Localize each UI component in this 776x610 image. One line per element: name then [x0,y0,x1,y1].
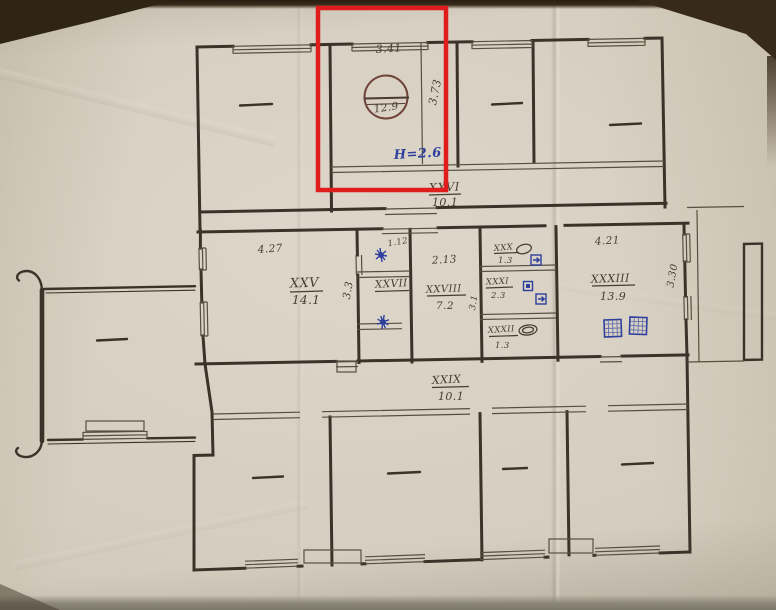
wall-end-curl-icon [17,271,42,292]
room-xxix-label: XXIX [431,372,463,387]
radiator-icon [531,255,541,265]
toilet-icon [518,324,537,336]
dim-room-xxxiii-depth: 3.30 [665,263,680,289]
height-note: H=2.6 [392,146,442,164]
annex-walls [16,244,762,457]
room-xxv-label: XXV [289,276,321,292]
toilet-icon [516,243,533,256]
dim-room-xxviii-width: 2.13 [431,253,458,266]
radiator-icon [536,294,546,304]
fixture-icons [516,243,538,336]
room-xxxii-label: XXXII [487,324,516,336]
asterisk-mark-icon [375,313,391,330]
dim-niche-width: 1.12 [387,236,409,249]
room-xxxiii-label: XXXIII [590,271,631,285]
circled-area-value: 12.9 [373,100,399,115]
room-xxv-area: 14.1 [292,293,320,307]
room-xxix-area: 10.1 [438,390,464,403]
room-xxxii-area: 1.3 [495,341,510,351]
asterisk-mark-icon [375,248,387,262]
stamp-icon [604,319,622,337]
floor-plan-drawing: 3.41 12.9 3.73 XXVI 10.1 4.27 XXV 14.1 3… [0,0,776,610]
dim-room-xxxiii-width: 4.21 [594,234,621,247]
room-xxviii-area: 7.2 [436,300,454,312]
dim-room-xxv-depth: 3.3 [341,280,356,300]
dim-room-xxv-width: 4.27 [256,242,283,256]
room-xxvi-area: 10.1 [432,196,458,209]
dim-small-rooms-depth: 3.1 [468,294,481,311]
room-xxviii-label: XXVIII [425,283,463,295]
scanned-floor-plan-photo: 3.41 12.9 3.73 XXVI 10.1 4.27 XXV 14.1 3… [0,0,776,610]
room-xxvii-label: XXVII [374,277,409,291]
room-xxxi-label: XXXI [485,276,510,287]
radiator-icon [524,282,533,291]
stamp-icon [629,317,647,335]
room-xxxi-area: 2.3 [490,291,506,301]
wall-end-curl-icon [16,439,42,457]
room-xxx-area: 1.3 [498,256,513,266]
lines-thin [83,38,744,568]
room-xxxiii-area: 13.9 [600,290,626,303]
dim-highlighted-room-width: 3.41 [375,41,402,56]
dim-highlighted-room-depth: 3.73 [426,78,444,106]
